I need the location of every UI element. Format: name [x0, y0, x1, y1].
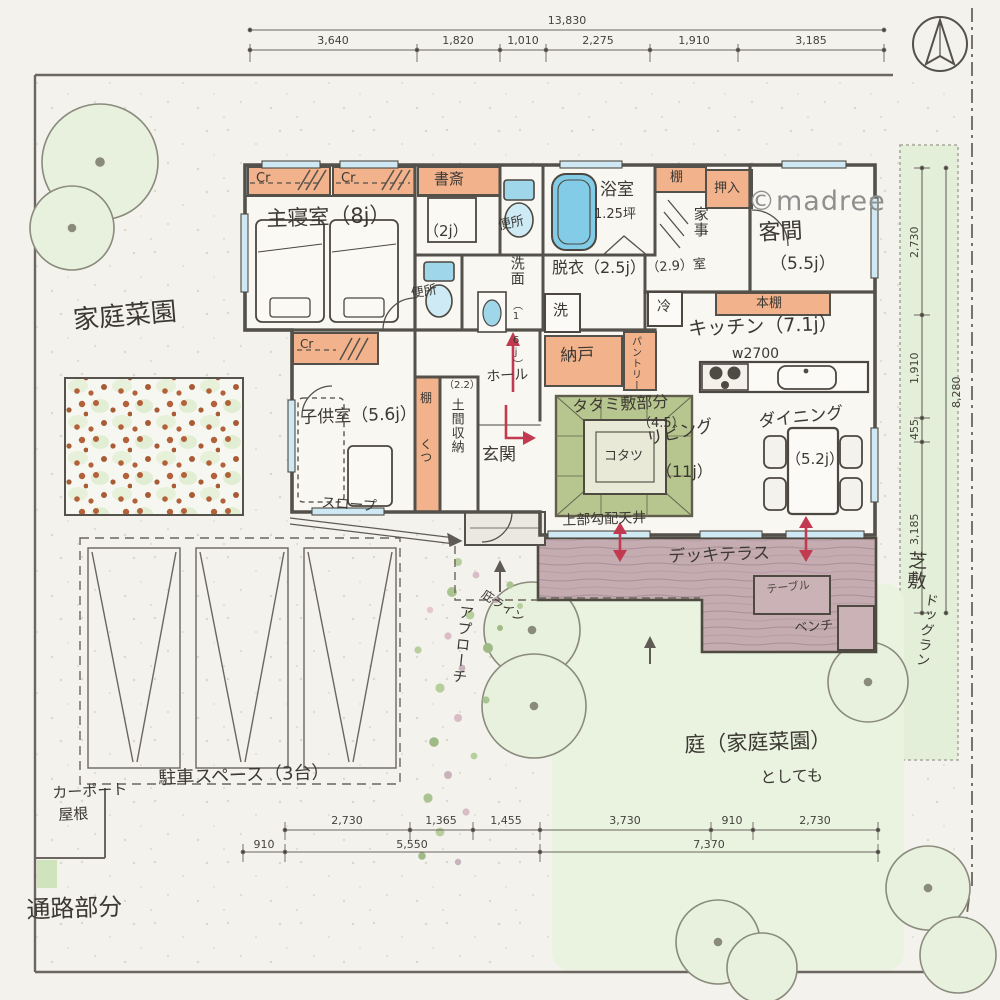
label-bookshelf: 本棚 — [756, 297, 782, 311]
watermark: ©madree — [748, 186, 886, 217]
room-label-hall: ホール — [486, 368, 529, 385]
dim-right-seg-1: 1,910 — [908, 353, 921, 385]
label-kotatsu: コタツ — [604, 450, 643, 464]
dim-top-seg-2: 1,010 — [507, 34, 539, 47]
closet-label-cr2: Cr — [341, 172, 355, 186]
dim-bottom1-3: 3,730 — [609, 814, 641, 827]
room-size-doma: （2.2） — [444, 381, 480, 392]
room-label-nando: 納戸 — [560, 347, 595, 366]
dim-top-seg-5: 3,185 — [795, 34, 827, 47]
label-fridge: 冷 — [657, 300, 671, 315]
room-size-bath: 1.25坪 — [594, 208, 636, 222]
washbasin-icon — [478, 292, 506, 332]
label-carport-2: 屋根 — [58, 806, 89, 823]
label-washer: 洗 — [553, 303, 568, 319]
label-yard: 庭（家庭菜園） — [684, 729, 832, 756]
room-size-living: （11j） — [656, 464, 713, 481]
plan-linework — [0, 0, 1000, 1000]
room-size-study: （2j） — [424, 224, 468, 240]
label-yard-2: としても — [760, 768, 823, 787]
dim-top-seg-4: 1,910 — [678, 34, 710, 47]
label-kitchen-width: w2700 — [732, 347, 779, 362]
label-lawn: 芝敷 — [904, 550, 926, 591]
room-label-doma: 土間収納 — [449, 398, 463, 454]
closet-label-cr1: Cr — [256, 172, 270, 186]
dim-bottom1-2: 1,455 — [490, 814, 522, 827]
dim-top-total: 13,830 — [548, 14, 587, 27]
label-oshiire: 押入 — [714, 182, 740, 196]
deck-bench — [838, 606, 874, 650]
room-label-washroom: 洗面 — [509, 256, 524, 286]
label-pantry: パントリー — [629, 336, 640, 391]
dim-bottom2-0: 910 — [254, 838, 275, 851]
passage-green-strip — [37, 860, 57, 888]
dim-bottom1-1: 1,365 — [425, 814, 457, 827]
room-label-dressing: 脱衣（2.5j） — [552, 260, 646, 277]
room-size-guest: （5.5j） — [770, 256, 836, 274]
dim-right-seg-2: 455 — [908, 419, 921, 440]
dim-right-total: 8,280 — [950, 377, 963, 409]
closet-label-cr3: Cr — [300, 338, 313, 351]
label-passage: 通路部分 — [26, 895, 123, 924]
kitchen-counter — [700, 362, 868, 392]
room-label-guest: 客間 — [758, 220, 803, 245]
floor-plan-canvas: 主寝室（8j） Cr Cr 書斎 （2j） 便所 浴室 1.25坪 棚 押入 客… — [0, 0, 1000, 1000]
room-size-dining: （5.2j） — [786, 452, 844, 468]
label-deck-terrace: デッキテラス — [668, 545, 770, 566]
dim-bottom2-2: 7,370 — [693, 838, 725, 851]
dim-top-seg-3: 2,275 — [582, 34, 614, 47]
dim-bottom1-4: 910 — [722, 814, 743, 827]
vegetable-garden-plot — [65, 378, 243, 515]
room-size-washroom: （1.6j） — [510, 300, 521, 370]
dim-bottom2-1: 5,550 — [396, 838, 428, 851]
dim-right-seg-3: 3,185 — [908, 514, 921, 546]
label-deck-bench: ベンチ — [794, 619, 834, 635]
dim-top-seg-1: 1,820 — [442, 34, 474, 47]
room-label-master-bedroom: 主寝室（8j） — [266, 204, 391, 230]
dim-top-seg-0: 3,640 — [317, 34, 349, 47]
room-label-genkan: 玄関 — [482, 447, 516, 465]
label-shelf-top: 棚 — [670, 171, 683, 185]
north-compass-icon — [913, 17, 967, 71]
dim-right-seg-0: 2,730 — [908, 227, 921, 259]
room-label-bath: 浴室 — [600, 182, 634, 200]
label-shelf-side: 棚 — [420, 392, 432, 405]
dim-bottom1-5: 2,730 — [799, 814, 831, 827]
dim-bottom1-0: 2,730 — [331, 814, 363, 827]
label-shoes: くつ — [419, 438, 432, 464]
bathtub-icon — [552, 174, 596, 250]
room-label-study: 書斎 — [434, 172, 464, 188]
label-sloped-ceiling: 上部勾配天井 — [562, 511, 646, 529]
room-label-utility: 家事 — [692, 206, 708, 238]
